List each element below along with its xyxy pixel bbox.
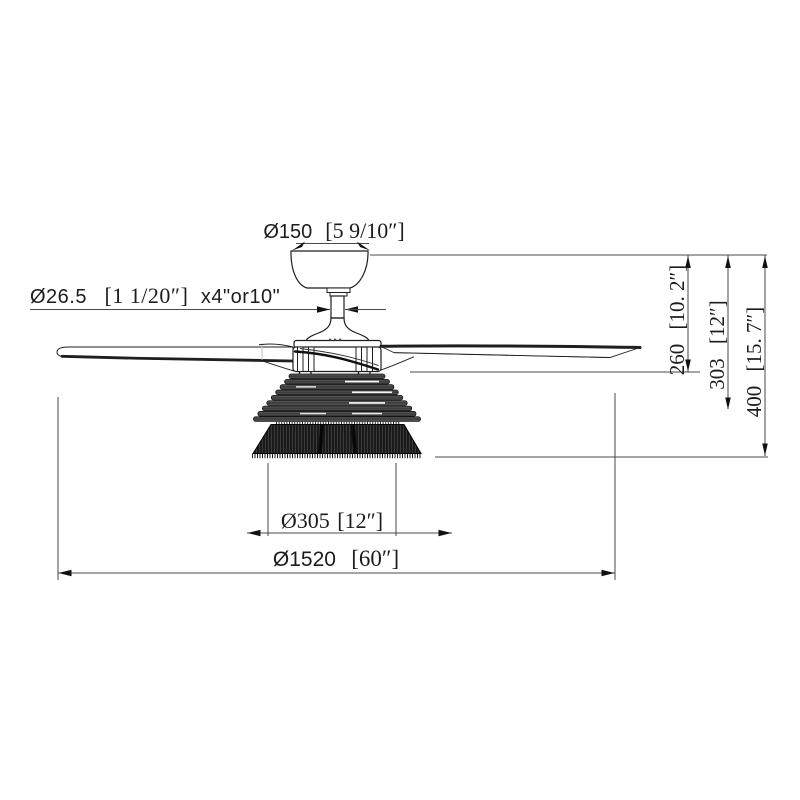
right-blade-underline — [394, 353, 610, 358]
right-blade-heavy-edge — [381, 346, 640, 348]
shade-dim-metric: Ø305 — [281, 508, 330, 533]
shade-slats — [254, 374, 421, 421]
ceiling-fan-drawing — [57, 251, 640, 456]
diagram-page: Ø150 [5 9/10″] Ø26.5 [1 1/20″] x4"or10" … — [0, 0, 800, 800]
downrod-length-options: x4"or10" — [201, 286, 280, 308]
canopy — [291, 251, 368, 288]
downrod-dim-imperial: [1 1/20″] — [104, 283, 188, 308]
canopy-dim-imperial: [5 9/10″] — [325, 218, 404, 243]
left-blade-heavy-edge — [62, 356, 293, 361]
sweep-dim-imperial: [60″] — [351, 546, 399, 571]
canopy-dim-metric: Ø150 — [263, 221, 312, 243]
svg-text:Ø26.5 [1 1/20″] x4: Ø26.5 [1 1/20″] x4"or10" — [30, 283, 280, 308]
svg-text:260 [10. 2″]: 260 [10. 2″] — [665, 265, 689, 375]
canopy-collar — [327, 288, 350, 293]
sweep-dim-metric: Ø1520 — [273, 548, 336, 571]
total-height-metric: 400 — [742, 386, 766, 418]
diagram-canvas: Ø150 [5 9/10″] Ø26.5 [1 1/20″] x4"or10" … — [0, 0, 800, 800]
dim-shade-diameter: Ø305 [12″] — [247, 463, 452, 536]
svg-text:400 [15. 7″]: 400 [15. 7″] — [742, 307, 766, 417]
grill-band — [253, 425, 421, 454]
shade-dim-imperial: [12″] — [337, 508, 383, 533]
light-height-imperial: [12″] — [705, 300, 729, 344]
svg-text:Ø150 [5 9/10″]: Ø150 [5 9/10″] — [263, 218, 404, 243]
blades-height-metric: 260 — [665, 344, 689, 376]
downrod — [331, 296, 344, 318]
mounting-bell — [306, 318, 369, 342]
dim-ceiling-to-light: 303 [12″] — [705, 255, 731, 410]
svg-text:Ø1520 [60″]: Ø1520 [60″] — [273, 546, 399, 571]
dim-canopy-diameter: Ø150 [5 9/10″] — [263, 218, 404, 251]
total-height-imperial: [15. 7″] — [742, 307, 766, 372]
light-height-metric: 303 — [705, 358, 729, 390]
dim-total-height: 400 [15. 7″] — [742, 255, 768, 456]
svg-text:Ø305 [12″]: Ø305 [12″] — [281, 508, 383, 533]
downrod-dim-metric: Ø26.5 — [30, 286, 87, 308]
plate-detail-dots — [329, 339, 341, 341]
dim-ceiling-to-blades: 260 [10. 2″] — [665, 255, 691, 375]
shade-grill — [252, 423, 422, 456]
blades-height-imperial: [10. 2″] — [665, 265, 689, 330]
svg-text:303 [12″]: 303 [12″] — [705, 300, 729, 389]
